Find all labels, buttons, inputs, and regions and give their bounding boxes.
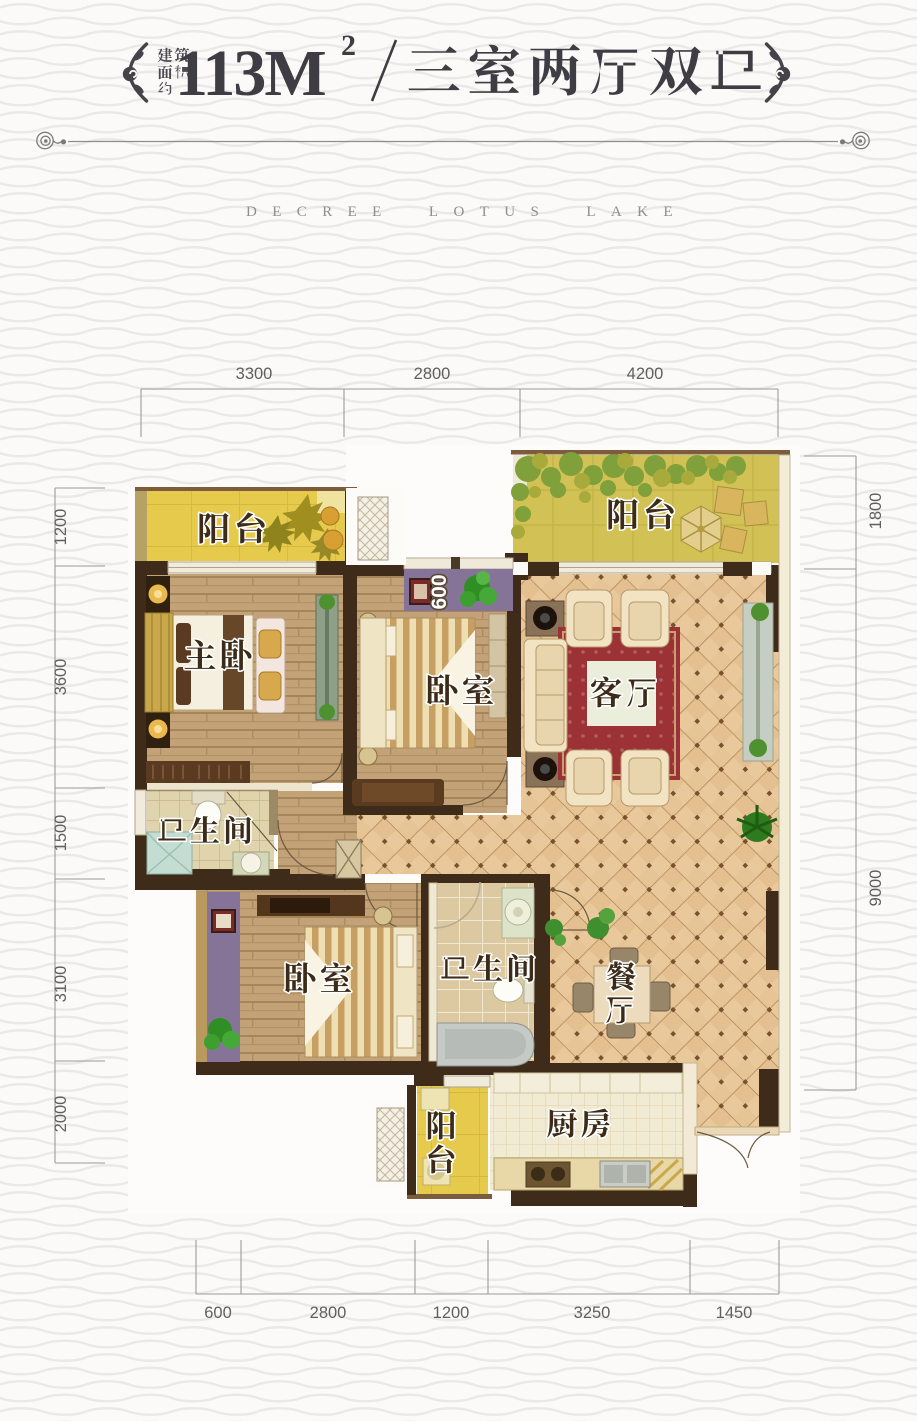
svg-text:600: 600: [428, 574, 451, 609]
svg-text:1200: 1200: [52, 509, 70, 546]
svg-text:1800: 1800: [867, 493, 885, 530]
svg-text:1500: 1500: [52, 815, 70, 852]
svg-text:113M: 113M: [175, 37, 325, 110]
svg-text:3600: 3600: [52, 659, 70, 696]
svg-text:1200: 1200: [433, 1304, 470, 1322]
svg-text:3300: 3300: [236, 365, 273, 383]
svg-text:DECREE LOTUS LAKE: DECREE LOTUS LAKE: [246, 204, 688, 220]
svg-text:4200: 4200: [627, 365, 664, 383]
svg-text:600: 600: [204, 1304, 232, 1322]
svg-text:9000: 9000: [867, 870, 885, 907]
svg-text:2800: 2800: [310, 1304, 347, 1322]
svg-text:3100: 3100: [52, 966, 70, 1003]
svg-text:2: 2: [341, 29, 356, 62]
svg-text:1450: 1450: [716, 1304, 753, 1322]
svg-text:3250: 3250: [574, 1304, 611, 1322]
svg-text:2000: 2000: [52, 1096, 70, 1133]
svg-text:2800: 2800: [414, 365, 451, 383]
